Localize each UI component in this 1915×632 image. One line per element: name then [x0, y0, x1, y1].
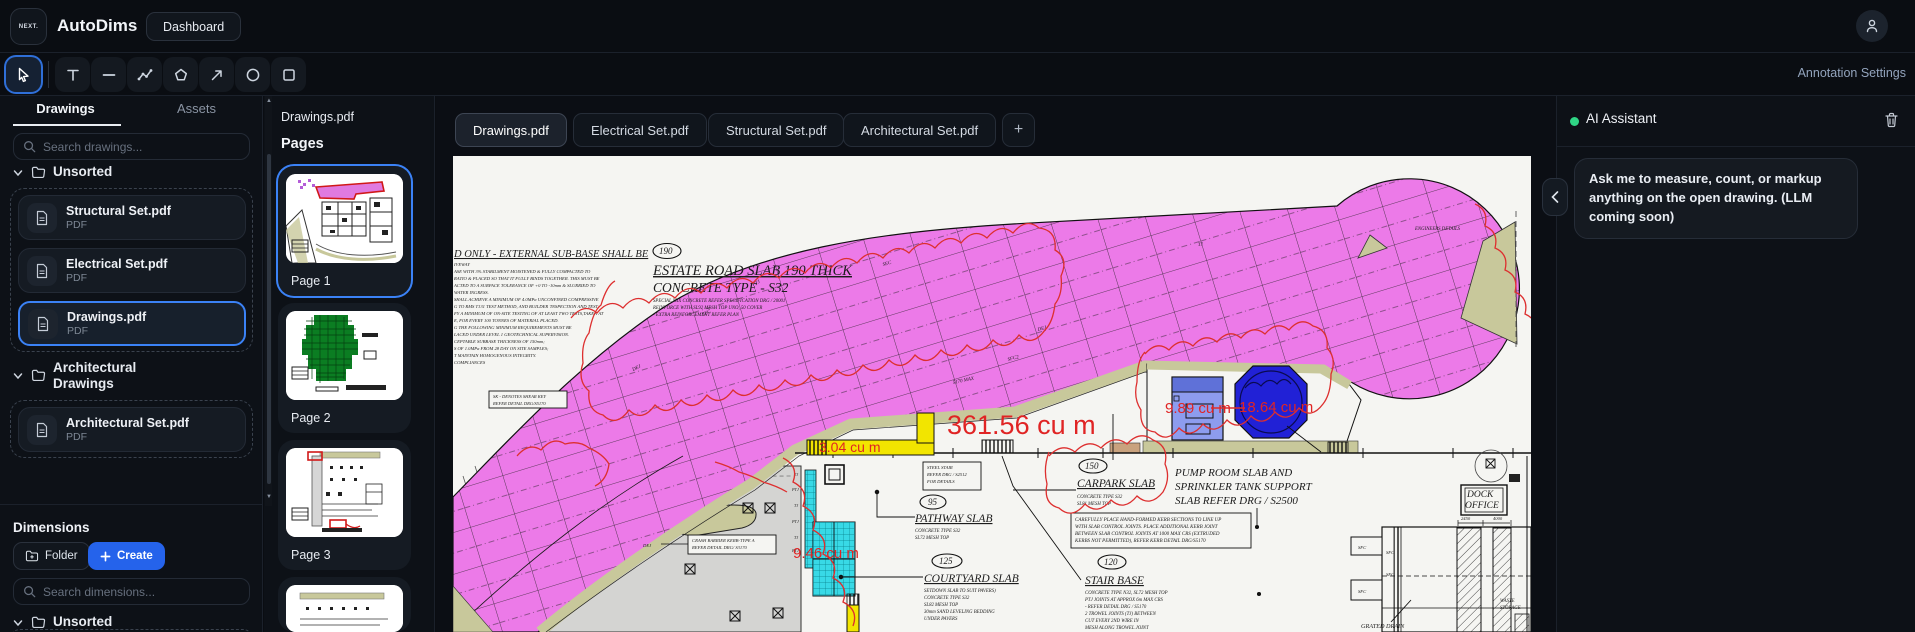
- ai-welcome-message: Ask me to measure, count, or markup anyt…: [1574, 158, 1858, 239]
- svg-text:REFER DETAIL DRG/S5170: REFER DETAIL DRG/S5170: [492, 401, 546, 406]
- file-type: PDF: [66, 272, 167, 284]
- chevron-down-icon: [12, 167, 24, 179]
- group-label: Unsorted: [53, 164, 112, 180]
- tab-drawings[interactable]: Drawings: [0, 96, 131, 124]
- page-thumb-2[interactable]: Page 2: [278, 303, 411, 433]
- svg-text:PTJ: PTJ: [791, 519, 800, 524]
- svg-text:CRASH BARRIER KERB-TYPE A: CRASH BARRIER KERB-TYPE A: [692, 538, 755, 543]
- arrow-tool-button[interactable]: [199, 57, 234, 92]
- svg-text:PTJ JOINTS AT APPROX 6m MAX C: PTJ JOINTS AT APPROX 6m MAX CRS: [1084, 598, 1164, 603]
- page-thumb-4[interactable]: [278, 577, 411, 632]
- cursor-tool-button[interactable]: [6, 57, 41, 92]
- tab-assets[interactable]: Assets: [131, 96, 262, 124]
- search-dimensions-input[interactable]: [43, 585, 240, 599]
- file-architectural-set[interactable]: Architectural Set.pdfPDF: [18, 407, 246, 452]
- dimensions-create-button[interactable]: Create: [88, 542, 165, 570]
- svg-text:ESTATE ROAD SLAB 190 THICK: ESTATE ROAD SLAB 190 THICK: [652, 263, 853, 279]
- svg-text:CONCRETE TYPE S32: CONCRETE TYPE S32: [1077, 495, 1123, 500]
- ai-panel-title: AI Assistant: [1586, 111, 1657, 126]
- svg-text:STAIR BASE: STAIR BASE: [1085, 575, 1144, 587]
- ai-panel-header: AI Assistant: [1557, 96, 1915, 147]
- group-label: Unsorted: [53, 614, 112, 630]
- svg-text:4000: 4000: [1493, 516, 1503, 521]
- pages-heading: Pages: [281, 136, 324, 152]
- page-thumb-1[interactable]: Page 1: [278, 166, 411, 296]
- svg-text:STORAGE: STORAGE: [1500, 606, 1521, 611]
- svg-text:PATHWAY SLAB: PATHWAY SLAB: [914, 513, 992, 525]
- svg-text:30mm SAND LEVELING BEDDING: 30mm SAND LEVELING BEDDING: [924, 610, 995, 615]
- svg-text:REINFORCE WITH SL92 MESH TOP U: REINFORCE WITH SL92 MESH TOP UNO, 50 COV…: [652, 306, 762, 311]
- page-thumbnail: [286, 448, 403, 537]
- svg-text:D ONLY - EXTERNAL SUB-BASE SHA: D ONLY - EXTERNAL SUB-BASE SHALL BE: [453, 249, 649, 260]
- svg-text:SL72 MESH TOP: SL72 MESH TOP: [915, 536, 949, 541]
- annotation-settings-link[interactable]: Annotation Settings: [1798, 66, 1906, 80]
- tank-volume-label: 18.64 cu m: [1239, 399, 1313, 416]
- svg-text:SK - DENOTES SHEAR KEY: SK - DENOTES SHEAR KEY: [493, 394, 546, 399]
- text-icon: [65, 67, 81, 83]
- dimensions-folder-button[interactable]: Folder: [13, 542, 90, 570]
- dashboard-button[interactable]: Dashboard: [146, 12, 241, 41]
- svg-text:ASE WITH 3% STABILMENT MOISTEN: ASE WITH 3% STABILMENT MOISTENED & FULLY…: [453, 269, 591, 274]
- dock-office-label: DOCK: [1466, 490, 1494, 500]
- svg-text:COURTYARD SLAB: COURTYARD SLAB: [924, 573, 1019, 585]
- svg-text:BETWEEN SLAB CONTROL JOINTS AT: BETWEEN SLAB CONTROL JOINTS AT 1000 MAX …: [1075, 532, 1220, 537]
- shear-key-note: SK - DENOTES SHEAR KEY REFER DETAIL DRG/…: [489, 391, 567, 408]
- road-volume-label: 361.56 cu m: [947, 410, 1096, 440]
- svg-text:CONCRETE TYPE - S32: CONCRETE TYPE - S32: [653, 280, 789, 295]
- trash-icon[interactable]: [1881, 110, 1901, 130]
- doc-tab-structural[interactable]: Structural Set.pdf: [708, 113, 844, 147]
- svg-text:WATER INGRESS.: WATER INGRESS.: [454, 290, 489, 295]
- group-architectural-drawings[interactable]: Architectural Drawings: [12, 360, 172, 392]
- svg-text:S OF 1.0MPa FROM 28 DAY ON SIT: S OF 1.0MPa FROM 28 DAY ON SITE SAMPLES;: [454, 346, 549, 351]
- rectangle-tool-button[interactable]: [271, 57, 306, 92]
- pages-doc-title: Drawings.pdf: [281, 110, 354, 124]
- svg-text:CAREFULLY PLACE HAND-FORMED KE: CAREFULLY PLACE HAND-FORMED KERB SECTION…: [1075, 518, 1221, 523]
- courtyard-volume-label: 9.46 cu m: [793, 545, 859, 562]
- user-avatar-button[interactable]: [1856, 10, 1888, 42]
- svg-text:DEJ: DEJ: [642, 543, 652, 548]
- grated-drain-label: GRATED DRAIN: [1361, 623, 1405, 630]
- svg-text:RATIO & PLACED SO THAT IT FUL: RATIO & PLACED SO THAT IT FULLY BINDS TO…: [453, 276, 600, 281]
- svg-text:- REFER DETAIL DRG / S5170: - REFER DETAIL DRG / S5170: [1085, 605, 1147, 610]
- svg-text:190: 190: [659, 246, 673, 256]
- pump-room-label: PUMP ROOM SLAB AND SPRINKLER TANK SUPPOR…: [1174, 467, 1313, 507]
- svg-text:SPRINKLER TANK SUPPORT: SPRINKLER TANK SUPPORT: [1175, 481, 1313, 493]
- folder-plus-icon: [25, 550, 39, 562]
- site-plan-drawing: SFC DEJ PTJ TJ SFC2 SEC 5170 MAX DEJ TJ …: [453, 156, 1531, 632]
- group-unsorted[interactable]: Unsorted: [12, 164, 112, 180]
- svg-text:PTJ: PTJ: [791, 487, 800, 492]
- pages-panel: ▲ ▼ Drawings.pdf Pages: [264, 96, 435, 632]
- chevron-down-icon: [12, 617, 24, 629]
- svg-text:REFER DRG / S2512: REFER DRG / S2512: [926, 472, 967, 477]
- page-thumbnail: [286, 311, 403, 400]
- polygon-tool-button[interactable]: [163, 57, 198, 92]
- svg-text:CARPARK SLAB: CARPARK SLAB: [1077, 478, 1155, 490]
- page-title: AutoDims: [57, 16, 137, 36]
- svg-text:REFER DETAIL DRG/ S3170: REFER DETAIL DRG/ S3170: [691, 545, 748, 550]
- file-structural-set[interactable]: Structural Set.pdfPDF: [18, 195, 246, 240]
- svg-text:120: 120: [1104, 557, 1118, 567]
- svg-text:CEPTABLE SUBBASE THICKNESS OF: CEPTABLE SUBBASE THICKNESS OF 150mm;: [454, 339, 545, 344]
- svg-text:IVEWAY: IVEWAY: [453, 262, 470, 267]
- file-type: PDF: [67, 325, 146, 337]
- group-label: Architectural Drawings: [53, 360, 163, 392]
- file-drawings-selected[interactable]: Drawings.pdfPDF: [18, 301, 246, 346]
- pdf-file-icon: [27, 203, 57, 233]
- chevron-down-icon: [12, 370, 24, 382]
- svg-text:SHALL ACHIEVE A MINIMUM OF 4.0: SHALL ACHIEVE A MINIMUM OF 4.0MPa UNCONF…: [454, 297, 599, 302]
- page-label: Page 2: [291, 411, 331, 425]
- strip-volume-label: 3.04 cu m: [819, 439, 880, 455]
- svg-text:SLAB REFER DRG / S2500: SLAB REFER DRG / S2500: [1175, 495, 1298, 507]
- engineers-details-label: ENGINEERS DETAILS: [1414, 227, 1461, 232]
- sidebar-divider: [0, 504, 263, 505]
- svg-text:CONCRETE TYPE N32, SL72 MESH T: CONCRETE TYPE N32, SL72 MESH TOP: [1085, 591, 1168, 596]
- drawing-canvas[interactable]: SFC DEJ PTJ TJ SFC2 SEC 5170 MAX DEJ TJ …: [453, 156, 1531, 632]
- top-bar: NEXT. AutoDims Dashboard: [0, 0, 1915, 53]
- line-tool-button[interactable]: [91, 57, 126, 92]
- svg-text:SFC: SFC: [1358, 545, 1367, 550]
- kerb-note: CAREFULLY PLACE HAND-FORMED KERB SECTION…: [1071, 513, 1251, 548]
- svg-text:SFC: SFC: [1386, 550, 1395, 555]
- svg-text:G THE FOLLOWING MINIMUM REQUIR: G THE FOLLOWING MINIMUM REQUIREMENTS MUS…: [454, 325, 572, 330]
- page-thumbnail: [286, 585, 403, 632]
- folder-icon: [31, 166, 46, 179]
- stair-treads: [982, 440, 1013, 453]
- svg-text:COMPLIANCES: COMPLIANCES: [454, 360, 486, 365]
- svg-text:SFC: SFC: [1358, 589, 1367, 594]
- pages-scrollbar[interactable]: ▲ ▼: [265, 96, 272, 506]
- search-drawings-field[interactable]: [13, 133, 250, 160]
- page-label: Page 3: [291, 548, 331, 562]
- search-icon: [23, 585, 36, 598]
- scrollbar-thumb[interactable]: [267, 154, 271, 484]
- file-type: PDF: [66, 219, 171, 231]
- file-title: Drawings.pdf: [67, 310, 146, 325]
- svg-text:CUT EVERY 2ND WIRE IN: CUT EVERY 2ND WIRE IN: [1085, 619, 1139, 624]
- pdf-file-icon: [28, 309, 58, 339]
- file-electrical-set[interactable]: Electrical Set.pdfPDF: [18, 248, 246, 293]
- arrow-icon: [209, 67, 225, 83]
- svg-text:CONCRETE TYPE S32: CONCRETE TYPE S32: [915, 529, 961, 534]
- polyline-tool-button[interactable]: [127, 57, 162, 92]
- page-label: Page 1: [291, 274, 331, 288]
- svg-text:OFFICE: OFFICE: [1465, 501, 1499, 511]
- doc-tab-electrical[interactable]: Electrical Set.pdf: [573, 113, 707, 147]
- steel-stair-note: STEEL STAIR REFER DRG / S2512 FOR DETAIL…: [923, 462, 981, 490]
- cursor-icon: [16, 67, 32, 83]
- ellipse-tool-button[interactable]: [235, 57, 270, 92]
- ai-panel-collapse-button[interactable]: [1542, 178, 1568, 216]
- logo-text: NEXT.: [19, 24, 39, 30]
- svg-text:ACTED TO A SURFACE TOLERANCE O: ACTED TO A SURFACE TOLERANCE OF +0 TO -1…: [453, 283, 596, 288]
- page-thumbnail: [286, 174, 403, 263]
- sidebar-tabs: Drawings Assets: [0, 96, 262, 124]
- svg-text:SFC: SFC: [1386, 572, 1395, 577]
- pdf-file-icon: [27, 415, 57, 445]
- scroll-down-icon[interactable]: ▼: [265, 494, 273, 500]
- doc-tab-drawings[interactable]: Drawings.pdf: [455, 113, 567, 147]
- ai-assistant-panel: AI Assistant Ask me to measure, count, o…: [1557, 96, 1915, 632]
- search-dimensions-field[interactable]: [13, 578, 250, 605]
- svg-text:SPECIAL MIX CONCRETE REFER SPE: SPECIAL MIX CONCRETE REFER SPECIFICATION…: [653, 299, 785, 304]
- add-tab-button[interactable]: +: [1002, 113, 1035, 147]
- search-drawings-input[interactable]: [43, 140, 240, 154]
- svg-text:STEEL STAIR: STEEL STAIR: [927, 465, 953, 470]
- circle-icon: [245, 67, 261, 83]
- file-type: PDF: [66, 431, 189, 443]
- page-thumb-3[interactable]: Page 3: [278, 440, 411, 570]
- chevron-left-icon: [1551, 191, 1559, 203]
- svg-text:SL82 MESH TOP: SL82 MESH TOP: [924, 603, 958, 608]
- pump-volume-label: 9.89 cu m: [1165, 400, 1231, 417]
- drawings-sidebar: Drawings Assets Unsorted Structural Set.…: [0, 96, 263, 632]
- svg-text:95: 95: [928, 497, 938, 507]
- svg-text:MESH ALONG TROWEL JOINT: MESH ALONG TROWEL JOINT: [1084, 626, 1149, 631]
- svg-text:125: 125: [939, 556, 953, 566]
- plus-icon: [100, 551, 111, 562]
- svg-text:LACED UNDER LEVEL 1 GEOTECHNIC: LACED UNDER LEVEL 1 GEOTECHNICAL SUPERVI…: [453, 332, 569, 337]
- group-unsorted-box: Structural Set.pdfPDF Electrical Set.pdf…: [10, 188, 253, 352]
- svg-text:FOR DETAILS: FOR DETAILS: [926, 479, 955, 484]
- svg-text:UNDER PAVERS: UNDER PAVERS: [924, 617, 958, 622]
- folder-icon: [31, 616, 46, 629]
- svg-text:WITH SLAB CONTROL JOINTS. PLAC: WITH SLAB CONTROL JOINTS. PLACE ADDITION…: [1075, 525, 1219, 530]
- line-icon: [101, 67, 117, 83]
- group-architectural-box: Architectural Set.pdfPDF: [10, 400, 253, 458]
- svg-text:- EXTRA REINFORCEMENT REFER PL: - EXTRA REINFORCEMENT REFER PLAN: [653, 313, 740, 318]
- svg-text:T MAINTAIN HOMOGENOUS INTEGRIT: T MAINTAIN HOMOGENOUS INTEGRITY.: [454, 353, 536, 358]
- search-icon: [23, 140, 36, 153]
- pentagon-icon: [173, 67, 189, 83]
- annotation-toolbar: Annotation Settings: [0, 53, 1915, 96]
- file-title: Structural Set.pdf: [66, 204, 171, 219]
- svg-text:PUMP ROOM SLAB AND: PUMP ROOM SLAB AND: [1174, 467, 1292, 479]
- svg-text:150: 150: [1085, 461, 1099, 471]
- svg-text:SETDOWN SLAB TO SUIT PAVERS): SETDOWN SLAB TO SUIT PAVERS): [924, 589, 996, 594]
- text-tool-button[interactable]: [55, 57, 90, 92]
- scroll-up-icon[interactable]: ▲: [265, 98, 273, 104]
- doc-tab-architectural[interactable]: Architectural Set.pdf: [843, 113, 996, 147]
- svg-text:2450: 2450: [1461, 516, 1471, 521]
- pdf-file-icon: [27, 256, 57, 286]
- toolbar-divider: [48, 61, 49, 88]
- ai-status-dot: [1570, 117, 1579, 126]
- svg-text:WASTE: WASTE: [1500, 599, 1515, 604]
- polyline-icon: [137, 67, 153, 83]
- file-title: Architectural Set.pdf: [66, 416, 189, 431]
- document-workspace: Drawings.pdf Electrical Set.pdf Structur…: [436, 96, 1557, 632]
- person-icon: [1864, 18, 1880, 34]
- dimensions-heading: Dimensions: [13, 520, 90, 535]
- app-logo: NEXT.: [10, 8, 47, 45]
- app-root: NEXT. AutoDims Dashboard: [0, 0, 1915, 632]
- svg-text:2 TROWEL JOINTS (TJ) BETWEEN: 2 TROWEL JOINTS (TJ) BETWEEN: [1085, 612, 1157, 617]
- folder-icon: [31, 369, 46, 382]
- svg-text:KERBS NOT PERMITTED), REFER KE: KERBS NOT PERMITTED), REFER KERB DETAIL …: [1074, 539, 1206, 544]
- svg-text:CONCRETE TYPE S32: CONCRETE TYPE S32: [924, 596, 970, 601]
- file-title: Electrical Set.pdf: [66, 257, 167, 272]
- square-icon: [281, 67, 297, 83]
- group-dimensions-unsorted[interactable]: Unsorted: [12, 614, 112, 630]
